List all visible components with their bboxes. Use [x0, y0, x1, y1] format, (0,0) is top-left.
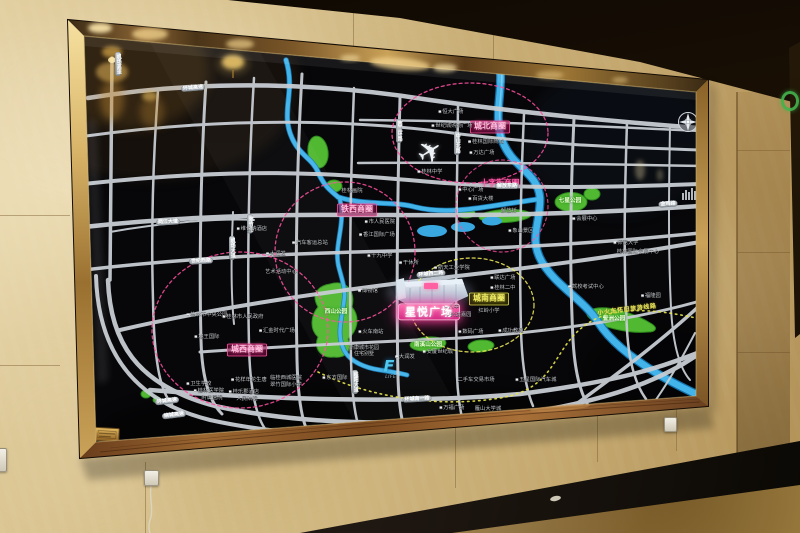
- compass-icon: [679, 113, 698, 132]
- map-lightbox-board: ✈ ✈: [0, 0, 800, 533]
- power-cable: [149, 486, 152, 533]
- wall-switch: [664, 417, 677, 432]
- brass-plaque: [95, 427, 120, 441]
- wall-fixture: [0, 448, 7, 472]
- frame-right: [696, 80, 708, 406]
- wall-outlet: [144, 470, 159, 486]
- photo-of-wall-map: ✈ ✈: [0, 0, 800, 533]
